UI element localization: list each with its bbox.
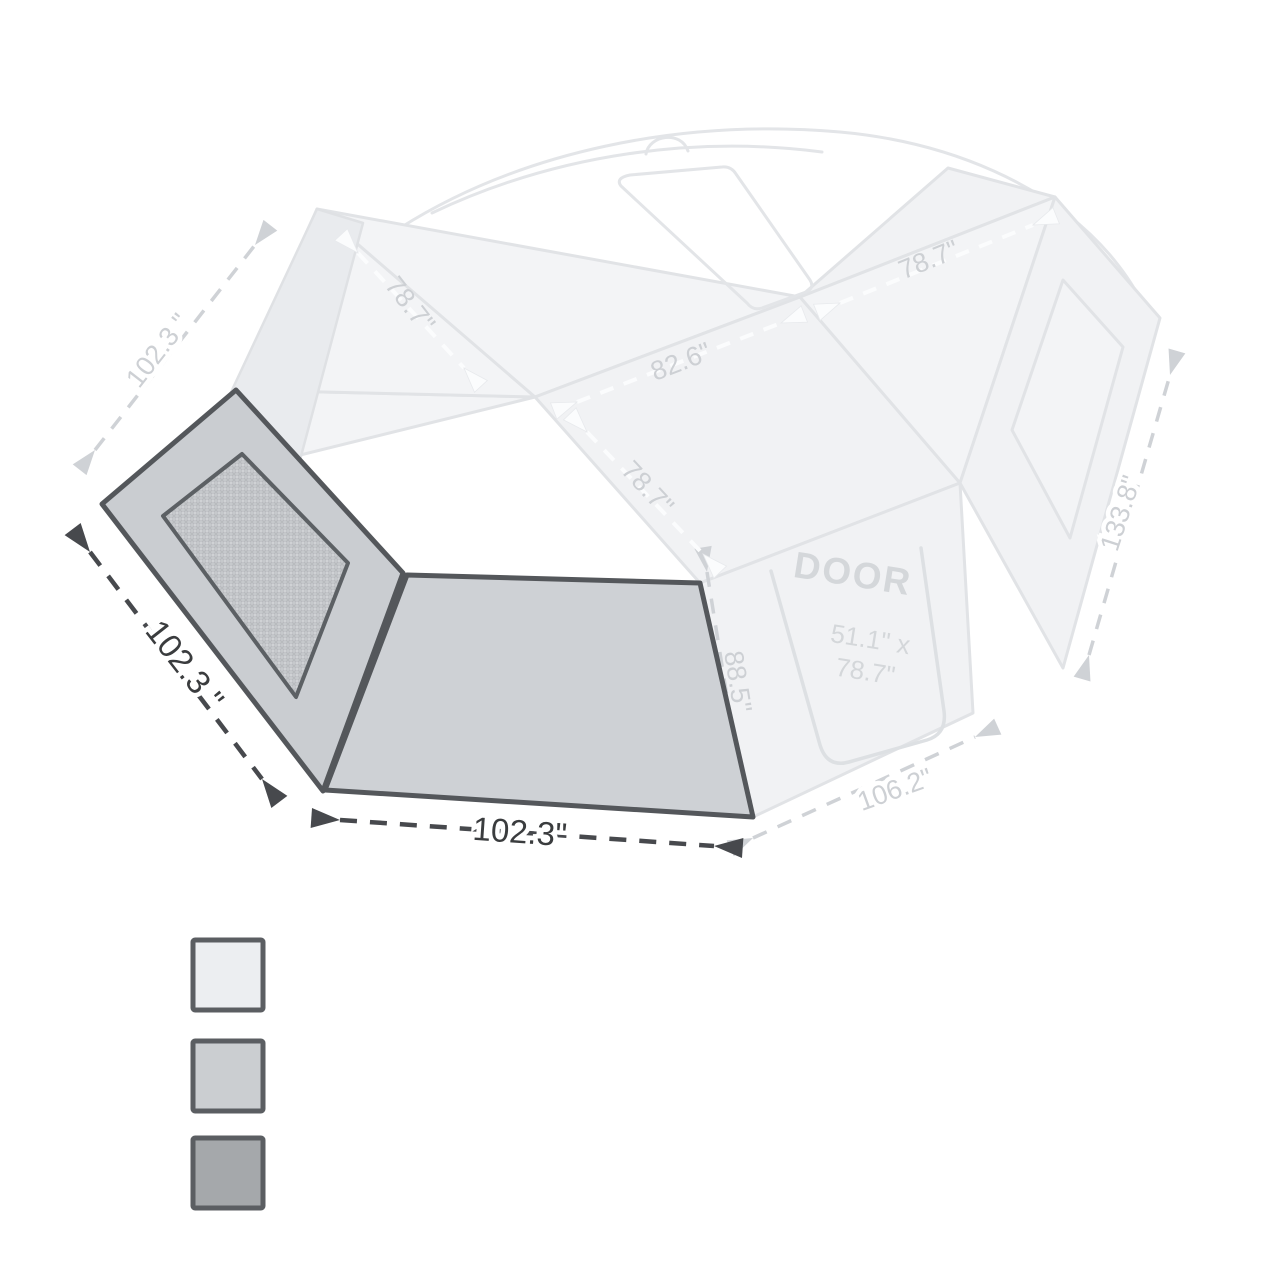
fabric-legend — [193, 940, 263, 1208]
svg-text:102.3 ": 102.3 " — [120, 308, 196, 393]
dim-front-wall-bottom: 102.3" — [340, 810, 714, 853]
legend-swatch-wall — [193, 1041, 263, 1111]
vehicle-roofline — [432, 146, 822, 213]
awning-dimension-diagram: DOOR 51.1" x 78.7" 102.3 " 133.8" 88.5" … — [0, 0, 1280, 1280]
legend-swatch-roof — [193, 940, 263, 1010]
svg-text:106.2": 106.2" — [854, 762, 937, 817]
diagram-canvas: DOOR 51.1" x 78.7" 102.3 " 133.8" 88.5" … — [0, 0, 1280, 1280]
svg-text:102.3": 102.3" — [471, 810, 568, 853]
legend-swatch-mesh — [193, 1138, 263, 1208]
